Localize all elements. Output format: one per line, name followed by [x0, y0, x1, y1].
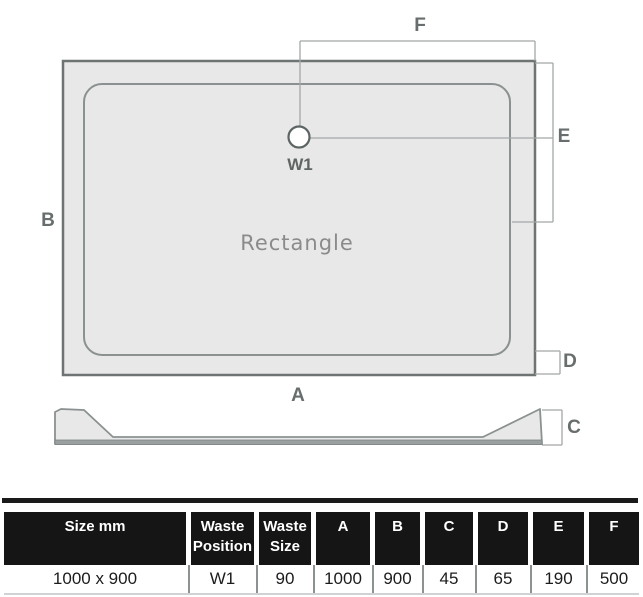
header-e: E	[533, 512, 584, 565]
shower-tray-spec-sheet: F E B A D C W1 Rectangle Size mm Waste P…	[0, 0, 643, 597]
cell-f: 500	[589, 565, 639, 593]
cell-waste-size: 90	[259, 565, 311, 593]
dimension-label-d: D	[563, 351, 577, 373]
dimension-label-e: E	[558, 126, 571, 148]
dimension-d-bracket	[535, 351, 560, 374]
cell-b: 900	[375, 565, 420, 593]
cell-c: 45	[425, 565, 473, 593]
dimension-label-b: B	[41, 210, 55, 232]
header-d: D	[478, 512, 528, 565]
spec-table-data-row: 1000 x 900 W1 90 1000 900 45 65 190 500	[4, 565, 639, 595]
waste-position-label: W1	[287, 155, 313, 175]
header-b: B	[375, 512, 420, 565]
cell-a: 1000	[316, 565, 370, 593]
side-profile-base-band	[55, 440, 542, 445]
cell-d: 65	[478, 565, 528, 593]
spec-table-header-row: Size mm Waste Position Waste Size A B C …	[4, 512, 639, 565]
header-c: C	[425, 512, 473, 565]
cell-size-mm: 1000 x 900	[4, 565, 186, 593]
waste-hole-circle	[289, 127, 310, 148]
dimension-label-f: F	[414, 15, 426, 37]
header-waste-position: Waste Position	[191, 512, 254, 565]
dimension-c-bracket	[542, 410, 562, 445]
header-waste-size: Waste Size	[259, 512, 311, 565]
table-top-rule	[2, 498, 638, 503]
dimension-label-c: C	[567, 417, 581, 439]
header-f: F	[589, 512, 639, 565]
header-size-mm: Size mm	[4, 512, 186, 565]
header-a: A	[316, 512, 370, 565]
side-profile-shape	[55, 409, 542, 444]
shape-name-label: Rectangle	[240, 231, 354, 255]
tray-outer-outline	[63, 61, 535, 375]
cell-e: 190	[533, 565, 584, 593]
cell-waste-position: W1	[191, 565, 254, 593]
dimension-label-a: A	[291, 385, 305, 407]
